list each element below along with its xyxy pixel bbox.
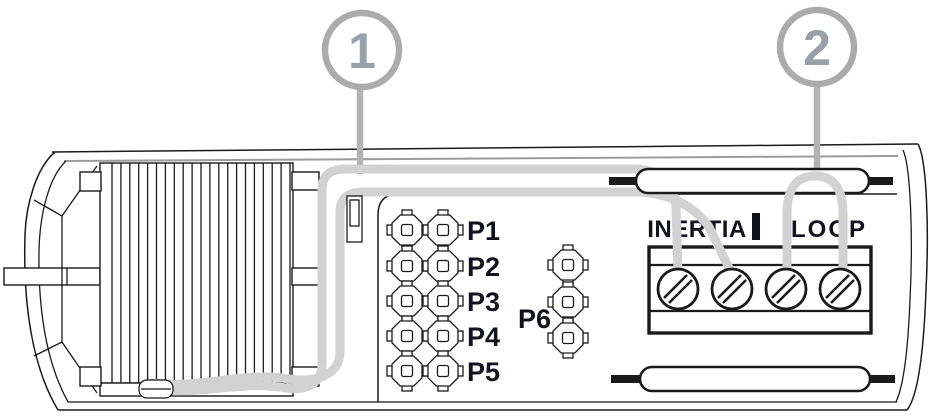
callout-1-number: 1	[348, 23, 376, 79]
jumper-label-p5: P5	[467, 357, 500, 387]
wiring-diagram: INERTIA LOOP P1 P2 P3	[0, 0, 929, 418]
coil-body	[100, 163, 293, 383]
jumper-label-p4: P4	[467, 322, 500, 352]
housing-right-inner-arc	[896, 150, 911, 402]
coil-fins	[112, 163, 290, 383]
wire-grommet	[139, 380, 173, 398]
jumper-label-p3: P3	[467, 287, 500, 317]
bracket-crossbar	[4, 268, 100, 285]
jumper-pin	[548, 318, 588, 358]
jumper-block-p6	[548, 245, 588, 358]
jumper-pin	[548, 282, 588, 322]
terminal-screw	[712, 269, 752, 309]
bottom-sleeve-body	[640, 367, 870, 391]
jumper-pin	[423, 351, 463, 391]
bracket-outer-chamfer-top	[34, 200, 62, 216]
terminal-label-loop: LOOP	[791, 216, 867, 243]
housing-top-inner-line	[64, 156, 898, 161]
jumper-block-p1-p5	[387, 210, 463, 391]
coil-component	[80, 163, 319, 396]
terminal-screw	[658, 269, 698, 309]
jumper-label-p6: P6	[518, 304, 551, 334]
jumper-pin	[423, 316, 463, 356]
bracket-outer-chamfer-bottom	[34, 342, 62, 356]
coil-tab-bottom-left	[80, 367, 101, 386]
jumper-pin	[423, 281, 463, 321]
edge-connector-slot	[350, 200, 359, 226]
terminal-label-inertia: INERTIA	[647, 216, 747, 243]
top-sleeve-left-lead	[609, 177, 638, 185]
jumper-pin	[423, 210, 463, 250]
coil-tab-top-right	[292, 172, 319, 190]
terminal-screw	[766, 269, 806, 309]
jumper-pin	[387, 246, 427, 286]
jumper-pin	[387, 210, 427, 250]
coil-tab-top-left	[80, 172, 101, 191]
callout-2-number: 2	[803, 20, 831, 76]
jumper-pin	[387, 351, 427, 391]
bottom-sleeve-left-lead	[611, 375, 642, 383]
jumper-labels: P1 P2 P3 P4 P5 P6	[467, 216, 551, 387]
coil-tab-mid-right	[292, 268, 319, 285]
jumper-pin	[387, 281, 427, 321]
housing-right-outer-arc	[907, 144, 927, 410]
callout-1: 1	[325, 13, 399, 87]
jumper-pin	[548, 245, 588, 285]
bottom-sleeve-right-lead	[868, 375, 895, 383]
jumper-label-p2: P2	[467, 252, 500, 282]
terminal-label-separator	[752, 213, 760, 240]
top-wire-sleeve	[609, 169, 893, 193]
callout-2: 2	[780, 10, 854, 84]
edge-connector	[347, 196, 362, 242]
jumper-pin	[423, 246, 463, 286]
jumper-label-p1: P1	[467, 216, 500, 246]
housing-top-edge	[52, 144, 918, 152]
jumper-pin	[387, 316, 427, 356]
terminal-screw	[820, 269, 860, 309]
left-mount-bracket	[4, 166, 100, 393]
bottom-wire-sleeve	[611, 367, 895, 391]
